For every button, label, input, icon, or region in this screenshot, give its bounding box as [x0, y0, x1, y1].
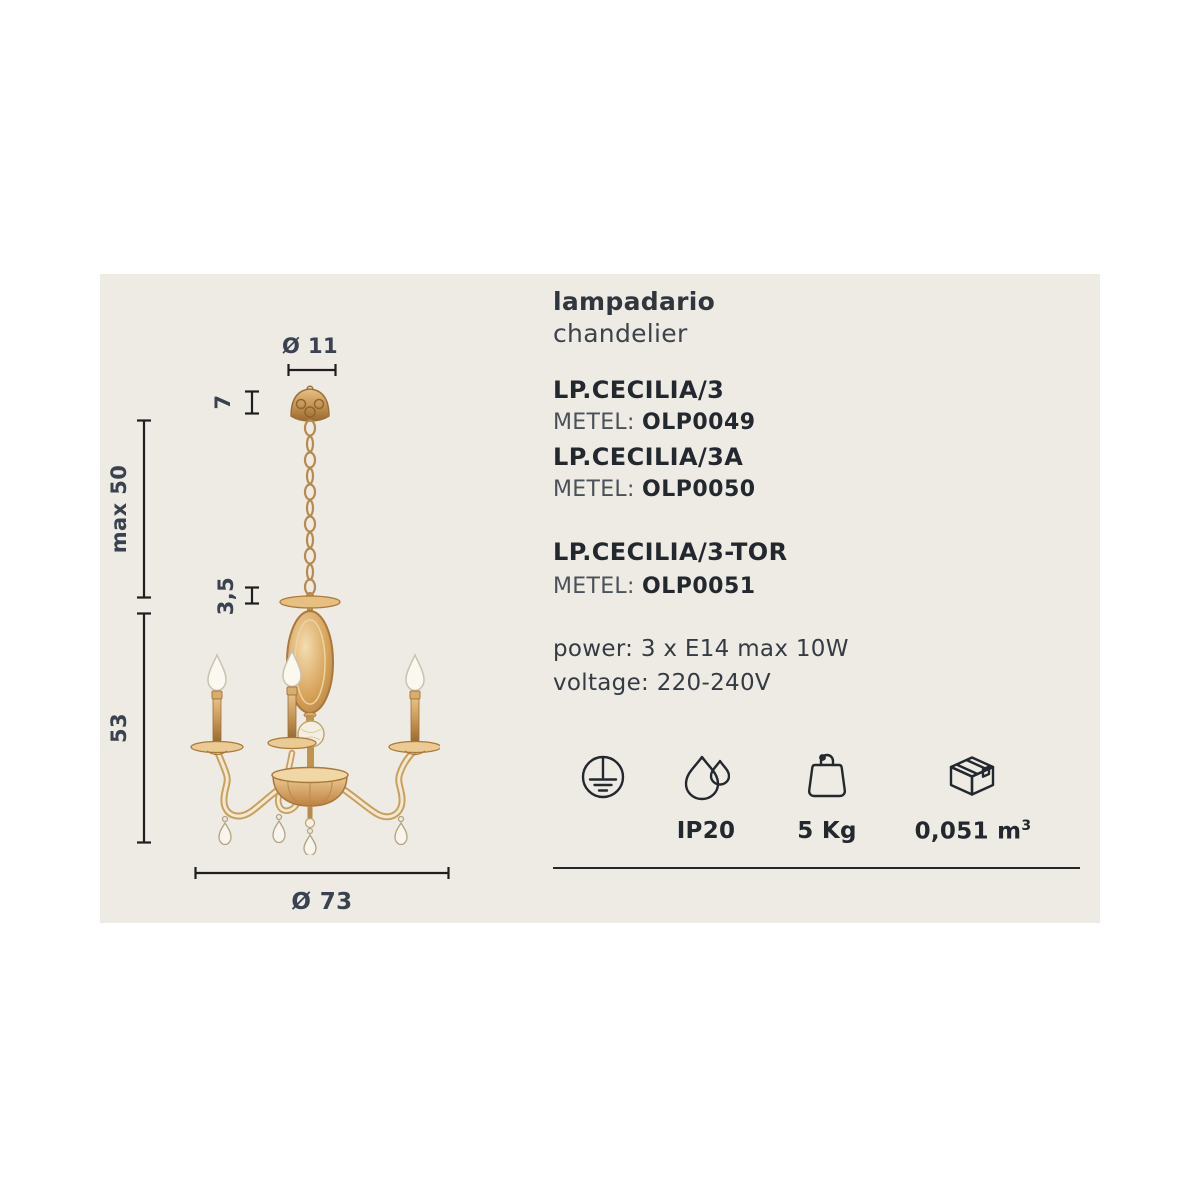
dim-suspension-max-label: max 50	[107, 465, 131, 554]
variant-name-3: LP.CECILIA/3-TOR	[553, 538, 788, 566]
product-title-it: lampadario	[553, 287, 715, 316]
dim-body-height-line	[136, 612, 152, 844]
footer-divider-line	[553, 867, 1080, 869]
spec-sheet-page: Ø 11 7 max 50 3,5 53 Ø 73 lampadario cha…	[0, 0, 1200, 1200]
dim-canopy-diameter-line	[287, 363, 337, 377]
dim-body-height-label: 53	[107, 713, 131, 743]
chain	[305, 421, 315, 600]
variant-metel-1: METEL: OLP0049	[553, 410, 756, 435]
variant-name-2: LP.CECILIA/3A	[553, 443, 743, 471]
dim-diameter-line	[194, 866, 450, 880]
dim-suspension-max-line	[136, 419, 152, 599]
chandelier-illustration	[180, 385, 440, 855]
metel-label: METEL:	[553, 574, 635, 599]
volume-exponent: 3	[1021, 818, 1031, 834]
product-title-en: chandelier	[553, 319, 688, 348]
volume-value: 0,051 m	[915, 819, 1022, 845]
dim-canopy-height-label: 7	[211, 394, 235, 409]
weight-badge: 5 Kg	[777, 818, 877, 844]
voltage-spec: voltage: 220-240V	[553, 670, 771, 696]
canopy	[291, 386, 329, 421]
metel-label: METEL:	[553, 410, 635, 435]
earth-ground-icon	[581, 755, 625, 803]
metel-code: OLP0051	[642, 574, 756, 599]
variant-metel-2: METEL: OLP0050	[553, 477, 756, 502]
variant-name-1: LP.CECILIA/3	[553, 376, 724, 404]
dim-stem-gap-label: 3,5	[214, 577, 238, 615]
metel-label: METEL:	[553, 477, 635, 502]
dim-canopy-height-line	[244, 390, 260, 415]
variant-metel-3: METEL: OLP0051	[553, 574, 756, 599]
metel-code: OLP0050	[642, 477, 756, 502]
dim-diameter-label: Ø 73	[291, 889, 352, 915]
ip-rating-badge: IP20	[656, 818, 756, 844]
dim-stem-gap-line	[244, 586, 260, 605]
dim-canopy-diameter-label: Ø 11	[282, 334, 338, 358]
volume-badge: 0,051 m3	[893, 818, 1053, 845]
weight-icon	[803, 751, 851, 803]
power-spec: power: 3 x E14 max 10W	[553, 636, 849, 662]
package-box-icon	[946, 752, 998, 806]
metel-code: OLP0049	[642, 410, 756, 435]
water-drops-icon	[682, 753, 730, 805]
